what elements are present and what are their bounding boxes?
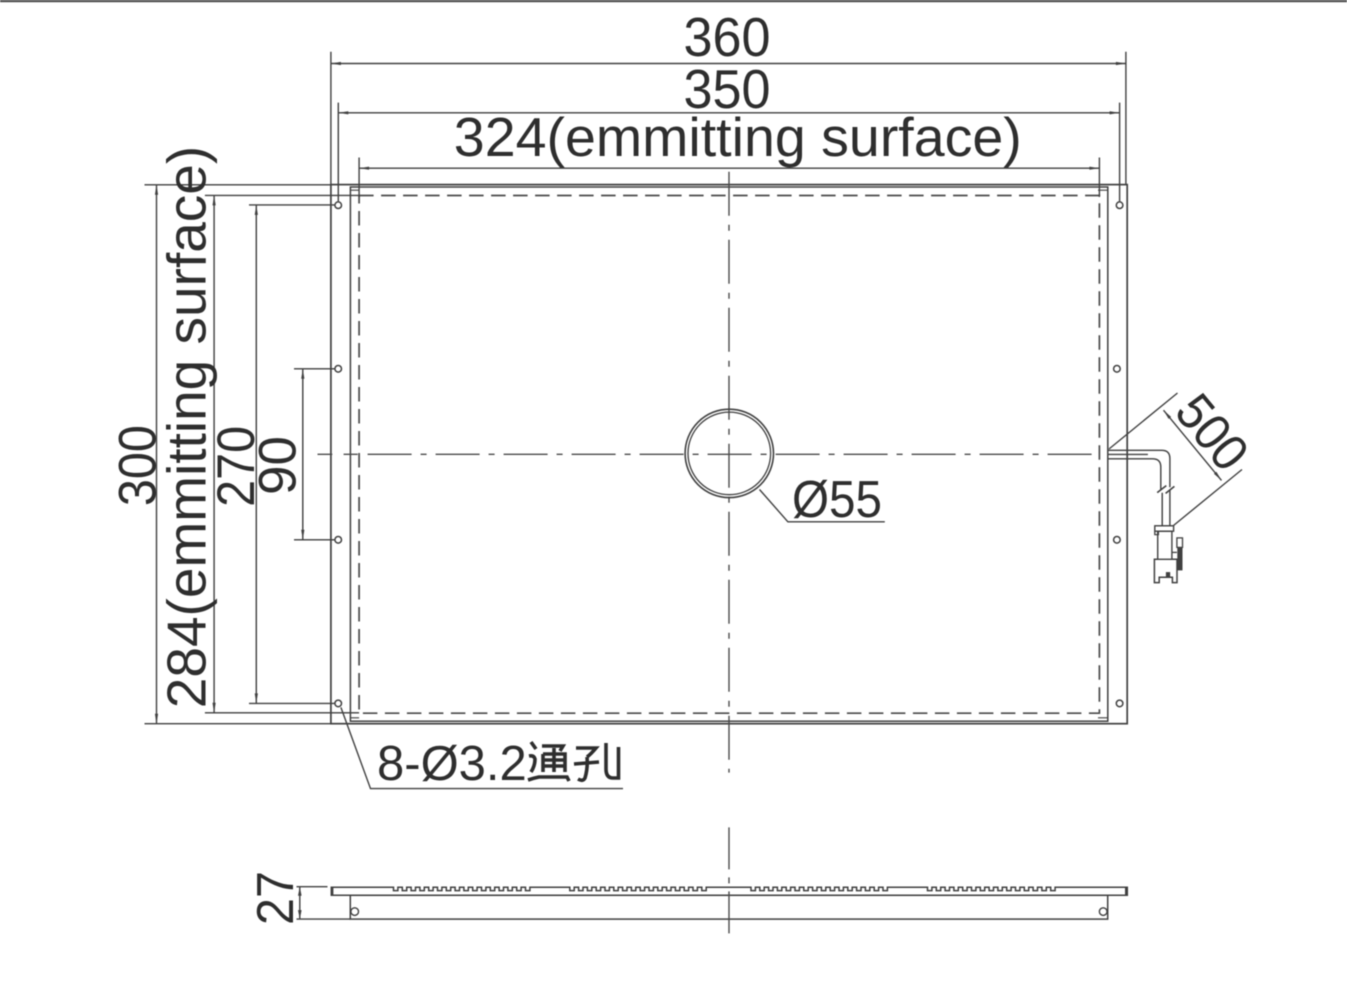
svg-text:324(emmitting surface): 324(emmitting surface)	[454, 106, 1022, 168]
svg-text:27: 27	[247, 871, 305, 925]
svg-text:Ø55: Ø55	[792, 471, 882, 529]
svg-text:90: 90	[248, 436, 307, 495]
svg-text:8-Ø3.2: 8-Ø3.2	[377, 737, 527, 791]
